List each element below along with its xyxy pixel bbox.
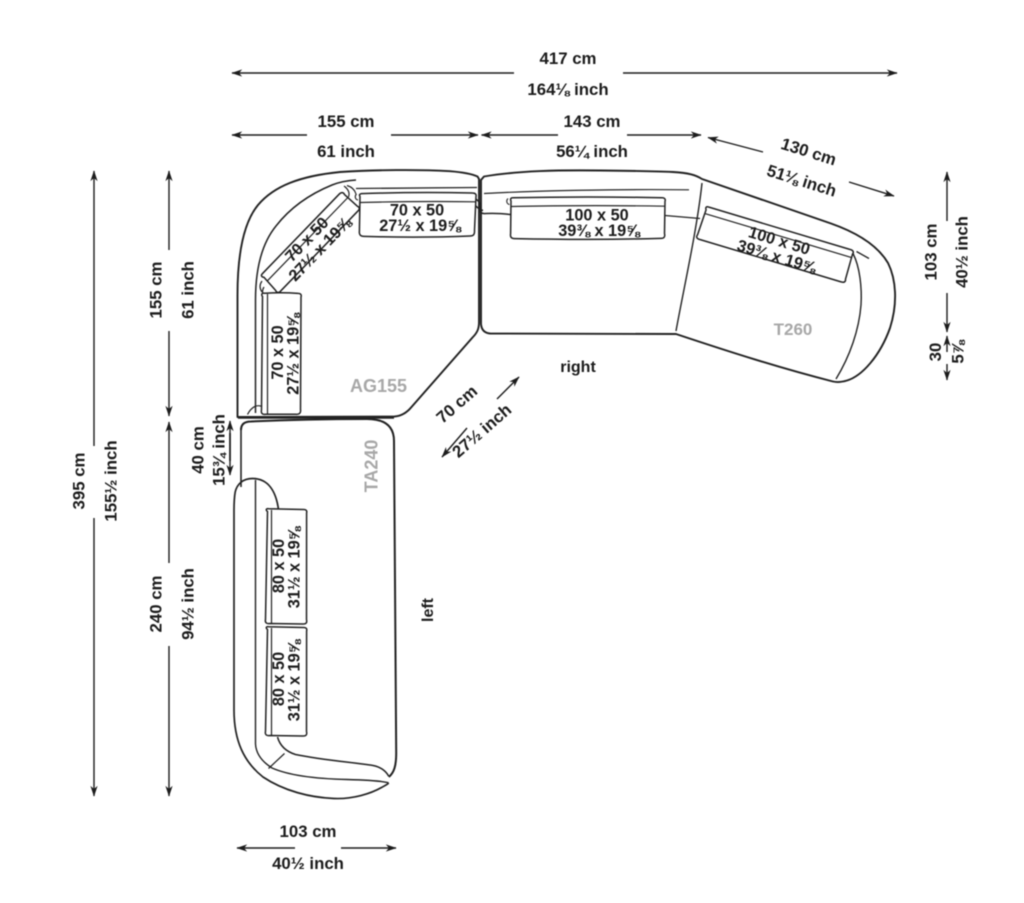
svg-text:30: 30	[926, 343, 945, 362]
svg-text:61 inch: 61 inch	[317, 142, 375, 161]
svg-text:27½ x 19⅝: 27½ x 19⅝	[379, 217, 462, 235]
svg-text:417 cm: 417 cm	[540, 49, 597, 68]
svg-text:240 cm: 240 cm	[147, 576, 166, 633]
svg-text:40½ inch: 40½ inch	[953, 216, 972, 288]
svg-text:40½ inch: 40½ inch	[272, 854, 344, 873]
svg-text:40 cm: 40 cm	[189, 426, 208, 474]
svg-text:5⅞: 5⅞	[949, 339, 968, 363]
svg-text:61 inch: 61 inch	[179, 261, 198, 319]
svg-text:94½ inch: 94½ inch	[179, 568, 198, 640]
svg-text:AG155: AG155	[350, 376, 407, 396]
svg-text:155½ inch: 155½ inch	[102, 440, 121, 521]
svg-text:T260: T260	[774, 320, 813, 339]
svg-text:TA240: TA240	[362, 440, 382, 493]
svg-text:15¾ inch: 15¾ inch	[210, 414, 229, 486]
svg-text:39⅜ x 19⅝: 39⅜ x 19⅝	[558, 222, 641, 240]
svg-text:164⅛ inch: 164⅛ inch	[527, 80, 608, 99]
svg-text:31½ x 19⅝: 31½ x 19⅝	[286, 638, 304, 721]
svg-text:155 cm: 155 cm	[318, 112, 375, 131]
svg-text:143 cm: 143 cm	[564, 112, 621, 131]
svg-text:31½ x 19⅝: 31½ x 19⅝	[286, 525, 304, 608]
svg-text:27½ x 19⅝: 27½ x 19⅝	[285, 312, 303, 395]
svg-text:155 cm: 155 cm	[147, 262, 166, 319]
svg-text:56¼ inch: 56¼ inch	[556, 142, 628, 161]
svg-text:103 cm: 103 cm	[280, 822, 337, 841]
svg-text:right: right	[560, 359, 596, 376]
svg-text:395 cm: 395 cm	[70, 453, 89, 510]
svg-text:103 cm: 103 cm	[922, 224, 941, 281]
svg-text:left: left	[420, 597, 437, 622]
